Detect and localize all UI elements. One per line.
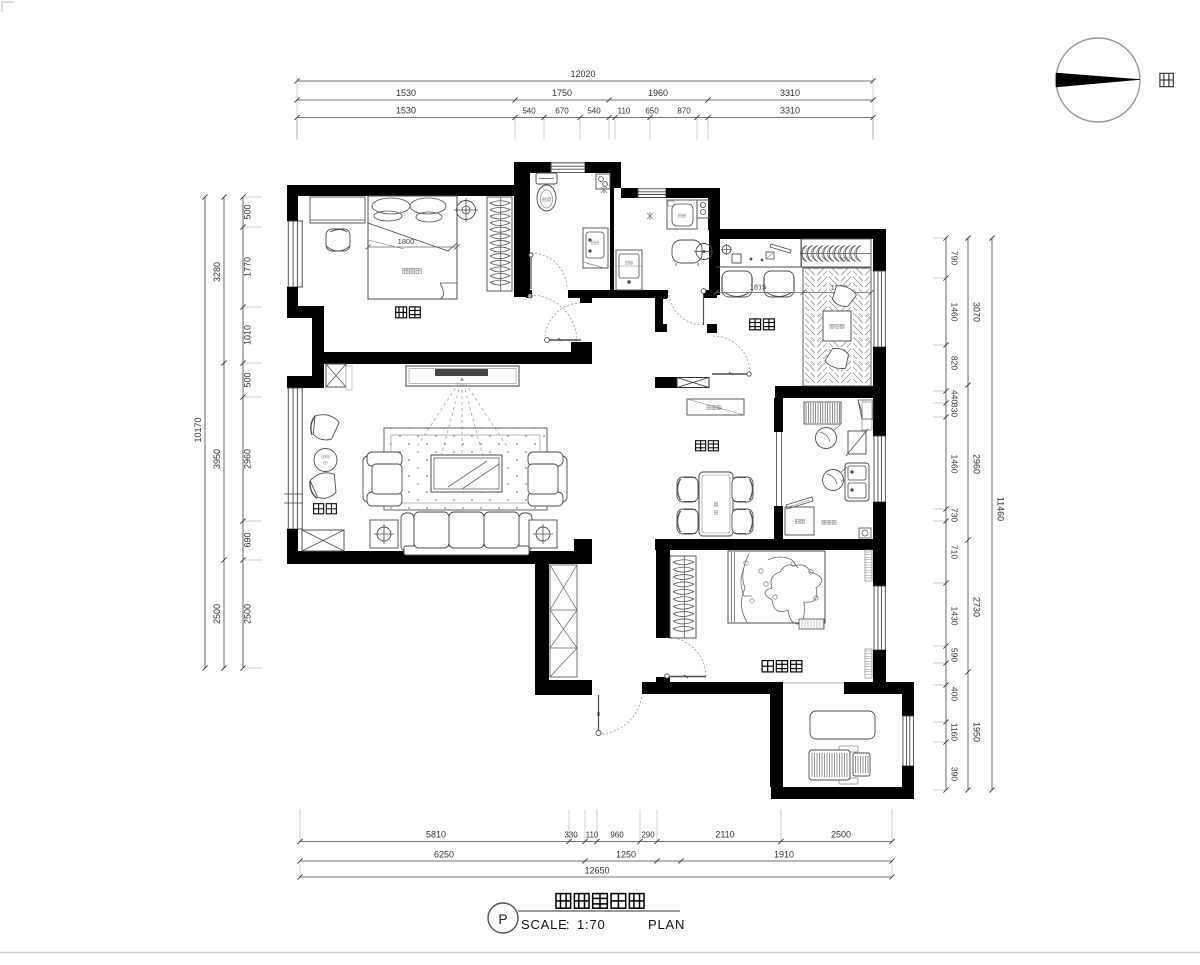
svg-text:5810: 5810: [426, 830, 446, 840]
svg-text:6250: 6250: [434, 850, 454, 860]
svg-text:390: 390: [950, 767, 960, 781]
svg-text:500: 500: [243, 204, 253, 219]
svg-text:3950: 3950: [212, 449, 222, 469]
svg-text:P: P: [498, 911, 507, 927]
svg-text:1950: 1950: [972, 722, 982, 742]
svg-text:870: 870: [677, 107, 691, 116]
svg-text:2110: 2110: [715, 830, 734, 840]
svg-text:12020: 12020: [570, 69, 595, 79]
svg-text:1530: 1530: [396, 106, 416, 116]
svg-text:2500: 2500: [212, 604, 222, 624]
svg-text:1460: 1460: [950, 455, 960, 474]
svg-text:820: 820: [950, 356, 960, 370]
svg-text:330: 330: [564, 831, 578, 840]
svg-text:1250: 1250: [616, 850, 636, 860]
svg-text:1430: 1430: [950, 607, 960, 626]
svg-text:1010: 1010: [243, 325, 253, 345]
svg-text:790: 790: [950, 251, 960, 265]
svg-text:2500: 2500: [831, 830, 851, 840]
svg-text:10170: 10170: [193, 417, 203, 442]
svg-text:330: 330: [950, 403, 960, 417]
svg-text:2960: 2960: [243, 449, 253, 469]
svg-text:1530: 1530: [396, 88, 416, 98]
svg-text:1800: 1800: [398, 237, 415, 246]
svg-text:590: 590: [950, 648, 960, 662]
svg-text:1:70: 1:70: [577, 917, 606, 932]
svg-text:3070: 3070: [972, 302, 982, 322]
svg-text:SCALE: SCALE: [521, 917, 568, 932]
svg-text:1460: 1460: [950, 303, 960, 322]
svg-text:11460: 11460: [996, 497, 1006, 521]
svg-text:400: 400: [950, 687, 960, 701]
svg-text:290: 290: [641, 831, 655, 840]
svg-text:710: 710: [950, 545, 960, 559]
svg-text:110: 110: [618, 107, 631, 116]
svg-text:3310: 3310: [780, 106, 800, 116]
svg-text:1770: 1770: [243, 257, 253, 277]
svg-text:1160: 1160: [950, 723, 960, 742]
svg-text:500: 500: [243, 372, 253, 387]
svg-text:3310: 3310: [780, 88, 800, 98]
svg-text:730: 730: [950, 508, 960, 522]
svg-text:960: 960: [610, 831, 624, 840]
svg-text:2730: 2730: [972, 597, 982, 617]
svg-text:1750: 1750: [552, 88, 572, 98]
svg-text:1960: 1960: [648, 88, 668, 98]
svg-text:12650: 12650: [584, 866, 609, 876]
svg-text:PLAN: PLAN: [648, 917, 685, 932]
svg-text:690: 690: [243, 532, 253, 547]
svg-text:2500: 2500: [243, 604, 253, 624]
svg-text:2960: 2960: [972, 454, 982, 474]
svg-text:1910: 1910: [774, 850, 794, 860]
svg-text:3280: 3280: [212, 262, 222, 282]
svg-text:540: 540: [587, 107, 601, 116]
svg-text:1815: 1815: [750, 283, 767, 292]
svg-text::: :: [566, 917, 570, 932]
svg-text:670: 670: [555, 107, 569, 116]
svg-text:650: 650: [645, 107, 659, 116]
svg-text:540: 540: [522, 107, 536, 116]
